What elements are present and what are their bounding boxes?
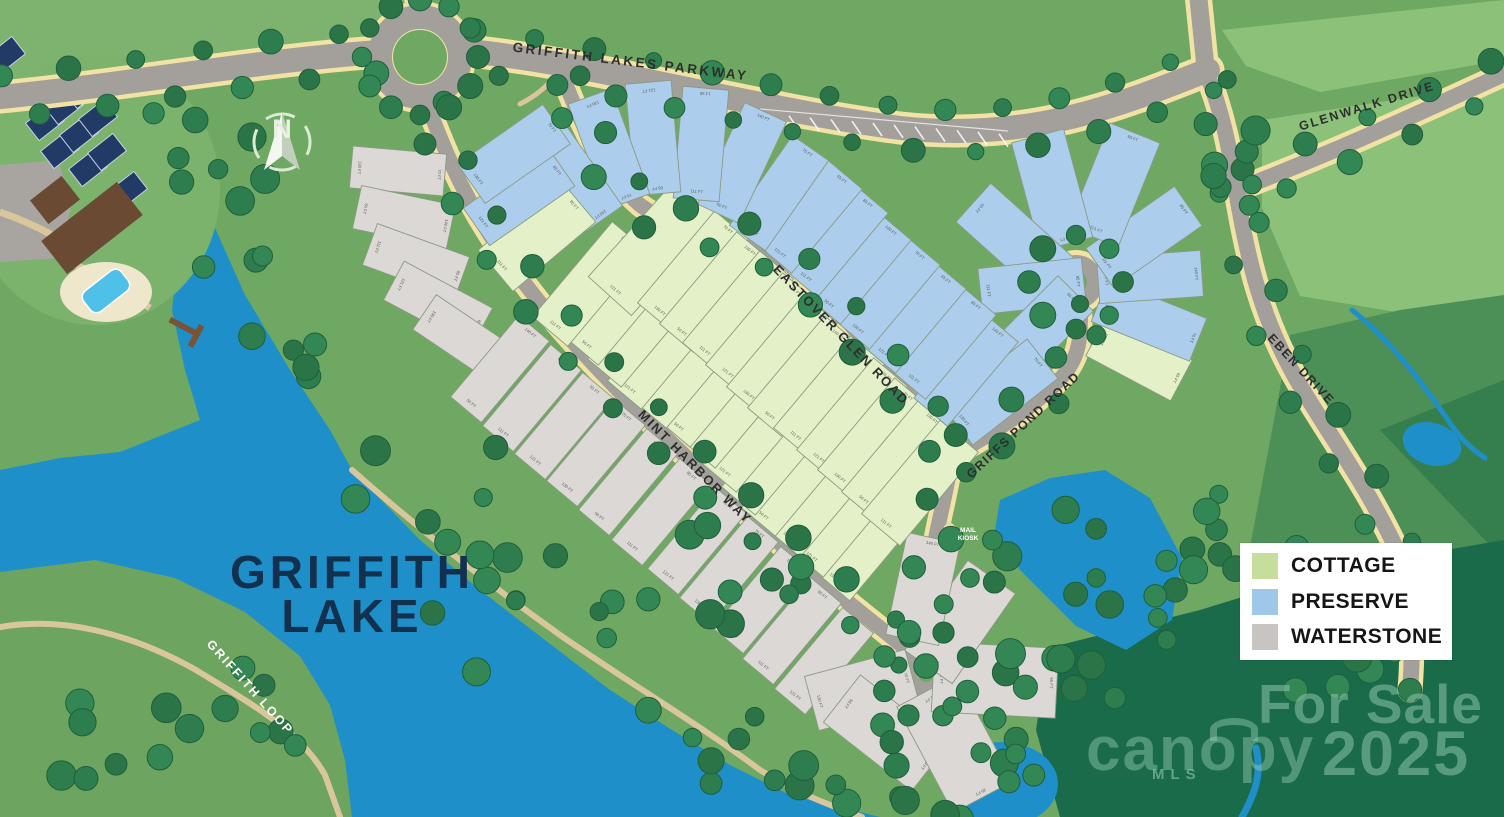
tree-icon	[559, 352, 577, 370]
tree-icon	[410, 105, 430, 125]
tree-icon	[961, 569, 980, 588]
tree-icon	[664, 97, 685, 118]
site-plan-map: 2818,762SQ FT28210,300SQ FT28310,348SQ F…	[0, 0, 1504, 817]
lot-dimension-label: 70 FT	[436, 169, 442, 181]
tree-icon	[1061, 675, 1087, 701]
tree-icon	[506, 591, 524, 609]
tree-icon	[984, 707, 1006, 729]
tree-icon	[1064, 582, 1088, 606]
tree-icon	[1104, 687, 1125, 708]
tree-icon	[380, 96, 403, 119]
tree-icon	[728, 728, 750, 750]
tree-icon	[1066, 225, 1085, 244]
tree-icon	[212, 695, 238, 721]
lot-dimension-label: 85 FT	[700, 91, 712, 97]
tree-icon	[1337, 150, 1362, 175]
tree-icon	[1045, 347, 1066, 368]
legend-swatch-waterstone	[1252, 624, 1278, 650]
tree-icon	[168, 147, 189, 168]
tree-icon	[143, 103, 164, 124]
tree-icon	[848, 298, 865, 315]
tree-icon	[361, 436, 391, 466]
tree-icon	[226, 187, 255, 216]
tree-icon	[561, 305, 582, 326]
tree-icon	[590, 602, 608, 620]
tree-icon	[164, 86, 185, 107]
tree-icon	[1023, 764, 1045, 786]
tree-icon	[943, 697, 962, 716]
tree-icon	[1156, 550, 1177, 571]
tree-icon	[1326, 674, 1350, 698]
tree-icon	[1157, 630, 1176, 649]
tree-icon	[700, 238, 719, 257]
tree-icon	[784, 124, 800, 140]
legend-item-waterstone: WATERSTONE	[1252, 624, 1452, 650]
tree-icon	[718, 580, 742, 604]
compass-n-label: N	[272, 114, 292, 144]
tree-icon	[605, 353, 624, 372]
tree-icon	[1006, 744, 1026, 764]
tree-icon	[1293, 132, 1317, 156]
tree-icon	[208, 160, 227, 179]
tree-icon	[999, 387, 1024, 412]
tree-icon	[284, 734, 306, 756]
tree-icon	[971, 743, 991, 763]
tree-icon	[1113, 272, 1134, 293]
tree-icon	[673, 196, 698, 221]
lot-dimension-label: 65 FT	[1049, 677, 1055, 689]
tree-icon	[175, 714, 203, 742]
tree-icon	[1052, 496, 1079, 523]
tree-icon	[683, 728, 702, 747]
tree-icon	[760, 74, 782, 96]
tree-icon	[1365, 464, 1389, 488]
tree-icon	[1243, 175, 1262, 194]
tree-icon	[474, 567, 501, 594]
tree-icon	[1100, 306, 1118, 324]
tree-icon	[631, 173, 648, 190]
tree-icon	[745, 707, 764, 726]
tree-icon	[182, 107, 208, 133]
tree-icon	[1279, 391, 1301, 413]
tree-icon	[488, 206, 506, 224]
tree-icon	[47, 761, 76, 790]
tree-icon	[1148, 609, 1167, 628]
tree-icon	[1265, 279, 1288, 302]
field-patch	[1222, 0, 1504, 92]
lot-dimension-label: 65 FT	[651, 185, 663, 191]
tree-icon	[250, 723, 270, 743]
tree-icon	[738, 212, 761, 235]
tree-icon	[521, 255, 544, 278]
tree-icon	[239, 323, 266, 350]
tree-icon	[934, 595, 953, 614]
tree-icon	[1162, 54, 1178, 70]
tree-icon	[933, 622, 954, 643]
tree-icon	[605, 85, 627, 107]
tree-icon	[466, 45, 489, 68]
tree-icon	[414, 133, 436, 155]
tree-icon	[96, 94, 119, 117]
road-surface[interactable]	[1198, 0, 1206, 72]
tree-icon	[493, 543, 523, 573]
tree-icon	[636, 697, 662, 723]
tree-icon	[1049, 88, 1070, 109]
tree-icon	[459, 151, 477, 169]
tree-icon	[956, 680, 978, 702]
tree-icon	[1018, 271, 1041, 294]
tree-icon	[147, 745, 172, 770]
tree-icon	[935, 99, 956, 120]
legend-swatch-cottage	[1252, 553, 1278, 579]
tree-icon	[170, 170, 194, 194]
mail-kiosk-label: KIOSK	[958, 535, 979, 542]
tree-icon	[543, 544, 567, 568]
tree-icon	[341, 485, 369, 513]
tree-icon	[1478, 48, 1504, 74]
roundabout-island	[393, 30, 447, 84]
tree-icon	[474, 488, 492, 506]
tree-icon	[439, 0, 459, 17]
tree-icon	[1087, 326, 1106, 345]
tree-icon	[293, 354, 319, 380]
tree-icon	[874, 680, 895, 701]
tree-icon	[594, 121, 616, 143]
tree-icon	[880, 730, 903, 753]
tree-icon	[1013, 675, 1037, 699]
tree-icon	[1030, 302, 1056, 328]
tree-icon	[1277, 179, 1296, 198]
tree-icon	[1283, 678, 1307, 702]
tree-icon	[842, 616, 859, 633]
tree-icon	[231, 76, 253, 98]
tree-icon	[983, 530, 1003, 550]
tree-icon	[29, 104, 49, 124]
tree-icon	[74, 767, 98, 791]
tree-icon	[1247, 326, 1266, 345]
tree-icon	[1147, 102, 1167, 122]
tree-icon	[1466, 98, 1483, 115]
tree-icon	[1402, 124, 1423, 145]
tree-icon	[901, 138, 925, 162]
tree-icon	[1144, 585, 1167, 608]
tree-icon	[744, 533, 761, 550]
tree-icon	[379, 0, 403, 19]
legend-item-cottage: COTTAGE	[1252, 553, 1452, 579]
tree-icon	[1047, 645, 1075, 673]
tree-icon	[1086, 518, 1107, 539]
tree-icon	[192, 256, 215, 279]
tree-icon	[359, 75, 381, 97]
tree-icon	[957, 647, 978, 668]
tree-icon	[252, 246, 272, 266]
lake-name: LAKE	[281, 590, 422, 642]
tree-icon	[914, 654, 938, 678]
tree-icon	[1193, 498, 1219, 524]
tree-icon	[259, 29, 284, 54]
tree-icon	[632, 216, 655, 239]
tree-icon	[1030, 236, 1056, 262]
tree-icon	[194, 41, 213, 60]
tree-icon	[887, 344, 909, 366]
tree-icon	[514, 300, 539, 325]
legend-swatch-preserve	[1252, 589, 1278, 615]
tree-icon	[238, 123, 266, 151]
tree-icon	[1398, 678, 1421, 701]
tree-icon	[69, 709, 96, 736]
tree-icon	[786, 525, 811, 550]
tree-icon	[891, 786, 919, 814]
tree-icon	[944, 424, 967, 447]
tree-icon	[902, 556, 925, 579]
tree-icon	[552, 108, 573, 129]
tree-icon	[489, 66, 508, 85]
tree-icon	[603, 399, 622, 418]
tree-icon	[1194, 113, 1217, 136]
tree-icon	[1071, 295, 1088, 312]
tree-icon	[834, 567, 859, 592]
tree-icon	[151, 693, 181, 723]
tree-icon	[56, 56, 81, 81]
tree-icon	[879, 96, 897, 114]
tree-icon	[1225, 256, 1243, 274]
tree-icon	[570, 66, 590, 86]
tree-icon	[998, 771, 1020, 793]
tree-icon	[1326, 402, 1351, 427]
tree-icon	[127, 51, 145, 69]
tree-icon	[789, 751, 819, 781]
tree-icon	[1105, 73, 1124, 92]
tree-icon	[820, 86, 839, 105]
tree-icon	[1163, 578, 1187, 602]
tree-icon	[725, 112, 742, 129]
tree-icon	[884, 753, 909, 778]
tree-icon	[352, 47, 371, 66]
tree-icon	[304, 333, 327, 356]
legend-label: COTTAGE	[1291, 554, 1396, 578]
tree-icon	[436, 95, 461, 120]
tree-icon	[799, 248, 820, 269]
tree-icon	[826, 775, 846, 795]
tree-icon	[1026, 133, 1050, 157]
tree-icon	[458, 73, 483, 98]
tree-icon	[1355, 514, 1375, 534]
tree-icon	[1180, 556, 1208, 584]
tree-icon	[1087, 569, 1105, 587]
mail-kiosk-label: MAIL	[960, 527, 976, 534]
tree-icon	[898, 705, 919, 726]
tree-icon	[361, 19, 379, 37]
tree-icon	[637, 588, 660, 611]
tree-icon	[330, 25, 348, 43]
tree-icon	[484, 435, 508, 459]
tree-icon	[1077, 651, 1105, 679]
map-canvas: 2818,762SQ FT28210,300SQ FT28310,348SQ F…	[0, 0, 1504, 817]
legend-label: WATERSTONE	[1291, 625, 1442, 649]
tree-icon	[700, 773, 722, 795]
tree-icon	[416, 509, 441, 534]
tree-icon	[916, 488, 938, 510]
tree-icon	[1249, 212, 1269, 232]
tree-icon	[919, 440, 941, 462]
tree-icon	[928, 396, 948, 416]
tree-icon	[420, 601, 445, 626]
tree-icon	[764, 770, 785, 791]
tree-icon	[477, 250, 496, 269]
tree-icon	[780, 585, 799, 604]
tree-icon	[1100, 239, 1119, 258]
tree-icon	[755, 258, 773, 276]
tree-icon	[1087, 119, 1111, 143]
tree-icon	[1096, 591, 1124, 619]
tree-icon	[694, 512, 720, 538]
tree-icon	[1319, 454, 1338, 473]
tree-icon	[983, 571, 1005, 593]
tree-icon	[897, 621, 920, 644]
tree-icon	[1241, 116, 1270, 145]
tree-icon	[581, 165, 606, 190]
lot-dimension-label: 140 FT	[1193, 267, 1199, 281]
tree-icon	[788, 554, 813, 579]
tree-icon	[299, 69, 320, 90]
tree-icon	[994, 99, 1012, 117]
tree-icon	[441, 192, 463, 214]
tree-icon	[463, 658, 491, 686]
tree-icon	[1066, 319, 1086, 339]
tree-icon	[547, 74, 568, 95]
tree-icon	[105, 753, 127, 775]
community-legend: COTTAGEPRESERVEWATERSTONE	[1240, 543, 1452, 660]
tree-icon	[597, 628, 616, 647]
tree-icon	[460, 18, 480, 38]
tree-icon	[760, 568, 783, 591]
tree-icon	[696, 600, 725, 629]
tree-icon	[1201, 163, 1226, 188]
tree-icon	[996, 639, 1026, 669]
tree-icon	[844, 134, 861, 151]
tree-icon	[698, 748, 724, 774]
tree-icon	[1218, 71, 1236, 89]
tree-icon	[1239, 195, 1259, 215]
legend-item-preserve: PRESERVE	[1252, 589, 1452, 615]
legend-label: PRESERVE	[1291, 590, 1409, 614]
tree-icon	[874, 646, 895, 667]
tree-icon	[968, 143, 984, 159]
